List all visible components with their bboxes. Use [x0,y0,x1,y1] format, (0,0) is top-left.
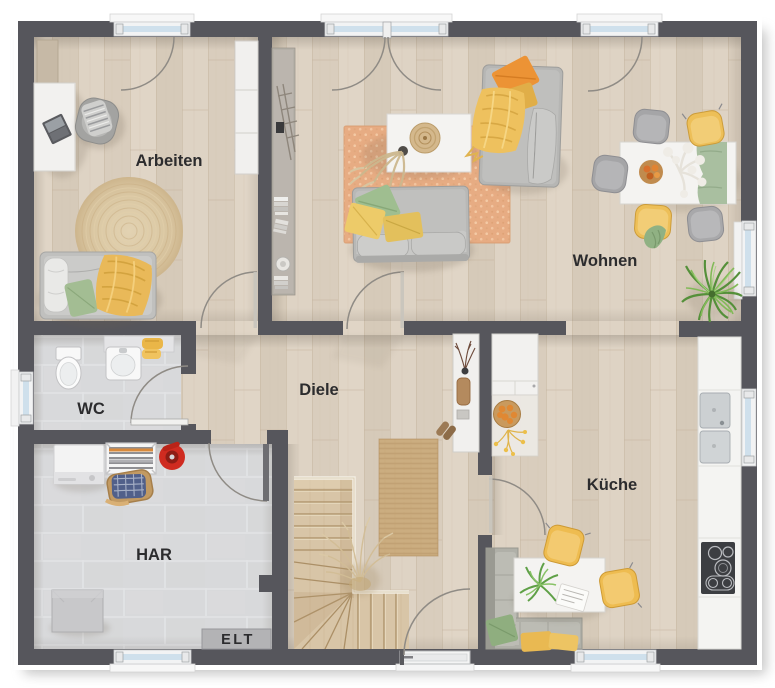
svg-text:Wohnen: Wohnen [573,252,638,270]
svg-text:Diele: Diele [299,381,338,399]
svg-text:ELT: ELT [221,632,255,648]
svg-text:HAR: HAR [136,546,172,564]
svg-text:WC: WC [77,400,105,418]
svg-text:Arbeiten: Arbeiten [136,152,203,170]
svg-text:Küche: Küche [587,476,637,494]
